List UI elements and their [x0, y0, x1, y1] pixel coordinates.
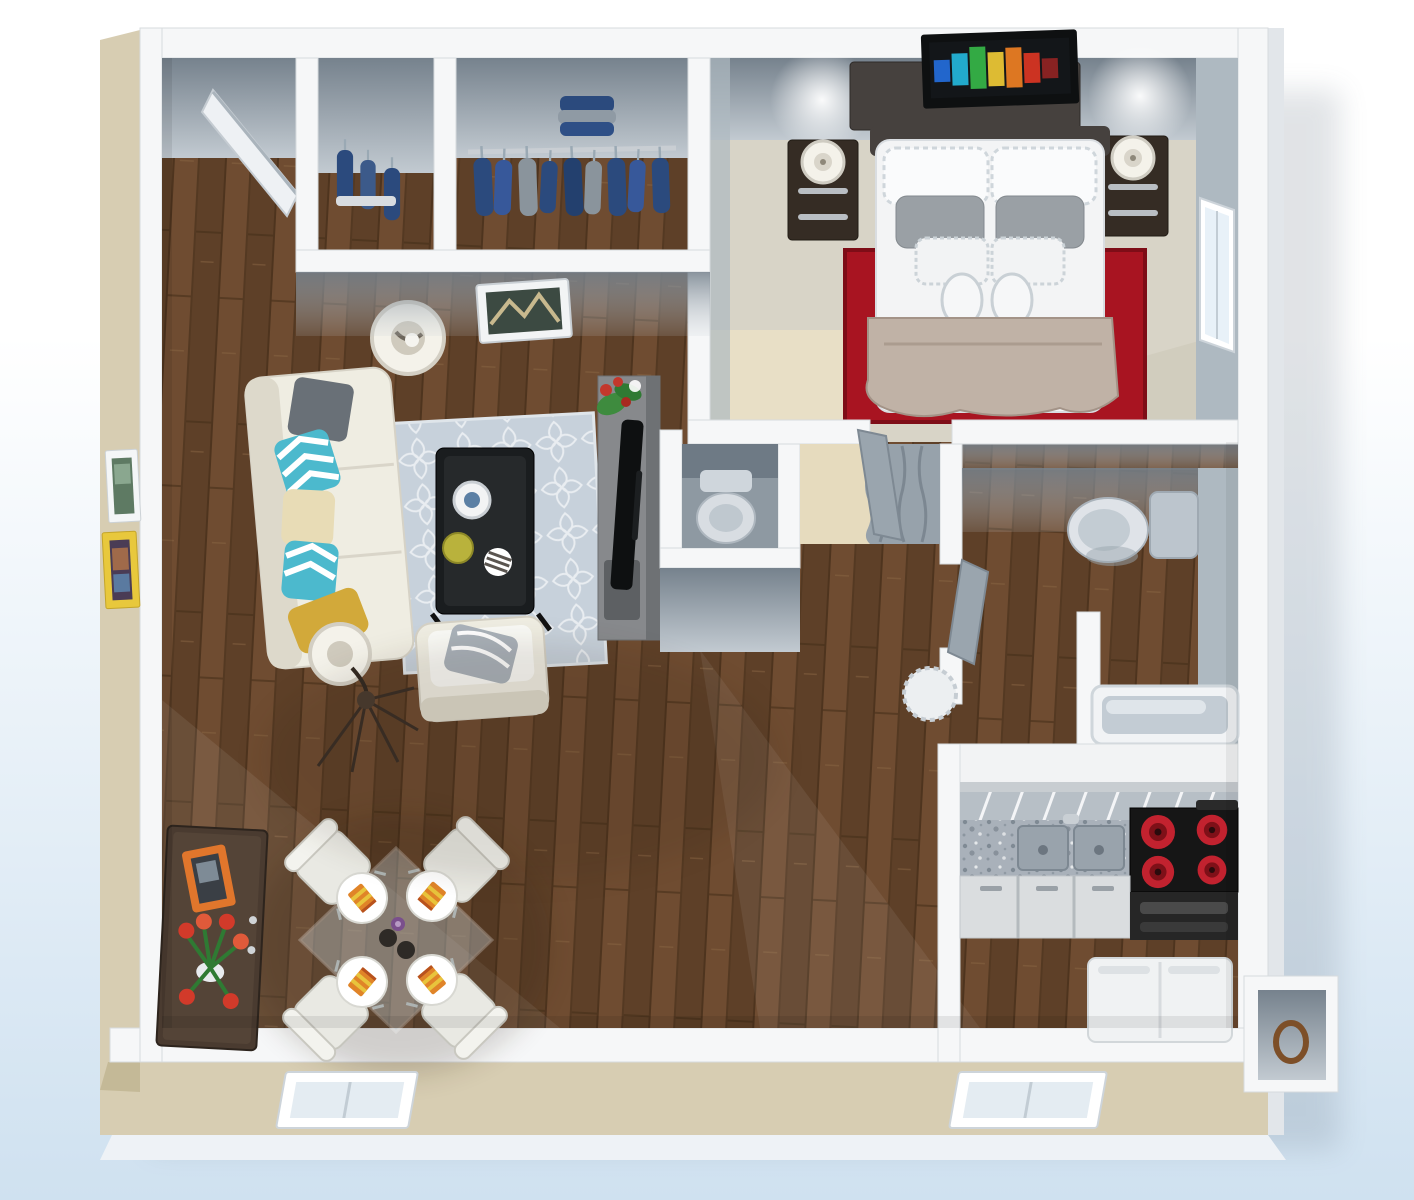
coffee-table	[432, 448, 550, 630]
tv-stand	[593, 376, 660, 640]
floor-plan-svg	[0, 0, 1414, 1200]
floor-plan-image	[0, 0, 1414, 1200]
wall-bathroom-left-upper	[940, 444, 962, 564]
wall-closet-divider	[434, 58, 456, 272]
wall-bedroom-south-right	[952, 420, 1238, 444]
wall-art-yellow	[102, 531, 140, 609]
left-outer-wall	[140, 28, 162, 1062]
bedroom-left-wall-face	[710, 58, 730, 442]
wc-front-wall-face	[660, 568, 800, 652]
bottom-skirt	[100, 1135, 1286, 1160]
bedroom-window	[1200, 198, 1234, 352]
pillow-cream	[281, 489, 336, 548]
wall-art-hallway	[476, 279, 572, 343]
faucet	[1063, 814, 1079, 824]
wall-wc-front-top	[660, 548, 800, 568]
wall-wc-left	[660, 430, 682, 566]
right-outer-wall	[1238, 28, 1268, 1062]
folded-stack	[558, 96, 616, 136]
washer-appliance	[1088, 958, 1232, 1042]
breakfast-bar-edge	[960, 782, 1238, 792]
wall-bedroom-south-left	[688, 420, 870, 444]
closet-small-wall-face	[318, 58, 434, 173]
bottom-window-right	[949, 1072, 1107, 1128]
bed-throw-blanket	[867, 318, 1119, 416]
bed	[867, 126, 1119, 416]
wall-art-white	[105, 449, 141, 523]
burner	[1197, 815, 1228, 846]
water-closet	[682, 444, 778, 548]
storage-nook	[1244, 976, 1338, 1092]
burner	[1198, 856, 1227, 885]
pillow-teal-chevron-2	[281, 540, 340, 602]
wall-entry-closet	[296, 58, 318, 272]
bathtub	[1092, 686, 1238, 744]
cooktop	[1130, 800, 1238, 892]
nightstand-left	[788, 140, 858, 240]
wall-kitchen-left	[938, 744, 960, 1062]
table-lamp	[1112, 137, 1154, 179]
bedroom-tv	[921, 29, 1079, 108]
top-outer-wall	[140, 28, 1268, 58]
decor-vase	[443, 533, 473, 563]
bottom-window-left	[276, 1072, 418, 1128]
right-exterior-edge	[1268, 28, 1284, 1135]
toilet	[697, 470, 755, 543]
wall-closet-south	[296, 250, 710, 272]
round-mat	[904, 668, 956, 720]
table-lamp	[802, 141, 844, 183]
burner	[1141, 815, 1175, 849]
linen-shelf	[336, 196, 396, 206]
burner	[1142, 856, 1174, 888]
